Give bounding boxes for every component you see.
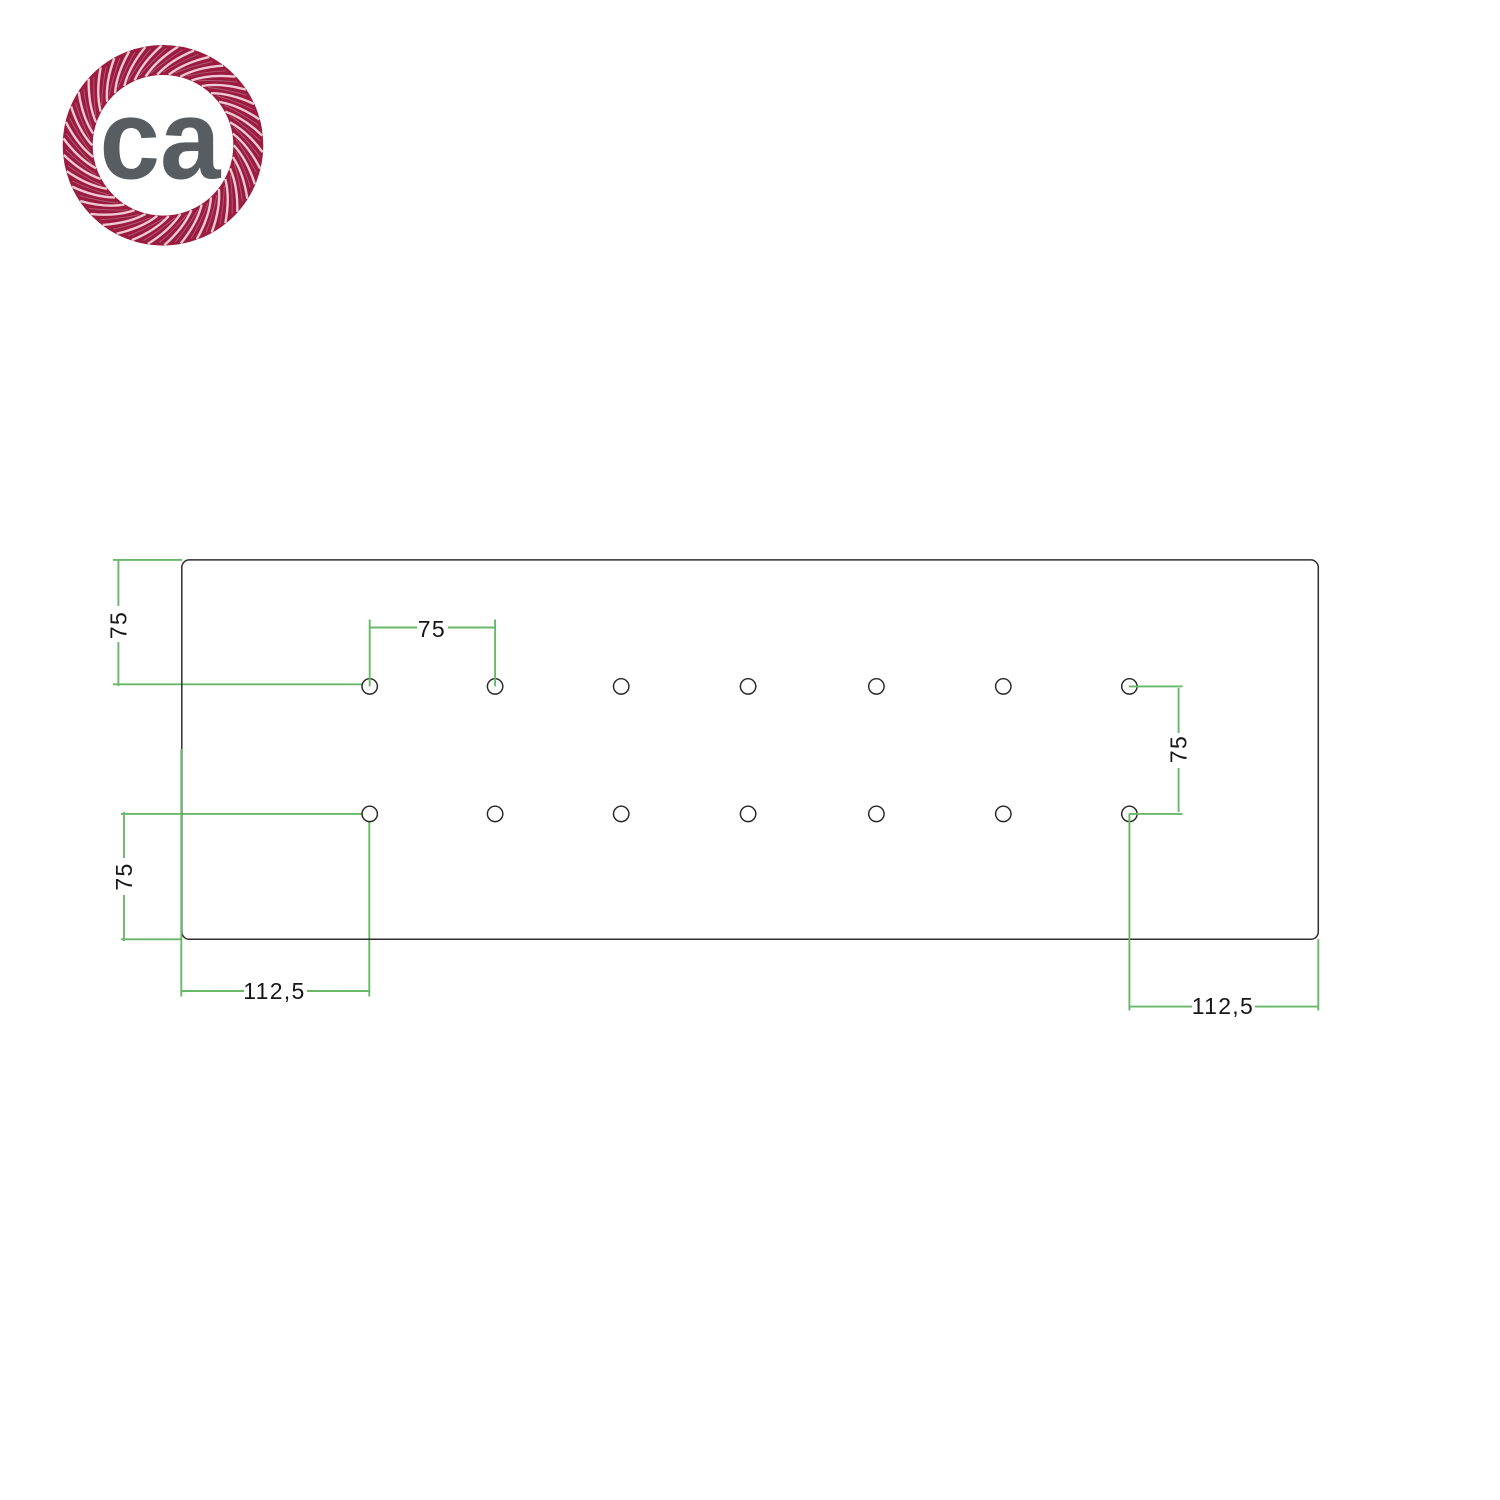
- svg-text:112,5: 112,5: [243, 978, 305, 1004]
- svg-text:75: 75: [1166, 735, 1192, 763]
- svg-text:75: 75: [111, 862, 137, 890]
- svg-text:75: 75: [105, 611, 131, 639]
- svg-text:112,5: 112,5: [1192, 993, 1254, 1019]
- svg-text:75: 75: [418, 616, 446, 642]
- svg-text:ca: ca: [100, 77, 222, 203]
